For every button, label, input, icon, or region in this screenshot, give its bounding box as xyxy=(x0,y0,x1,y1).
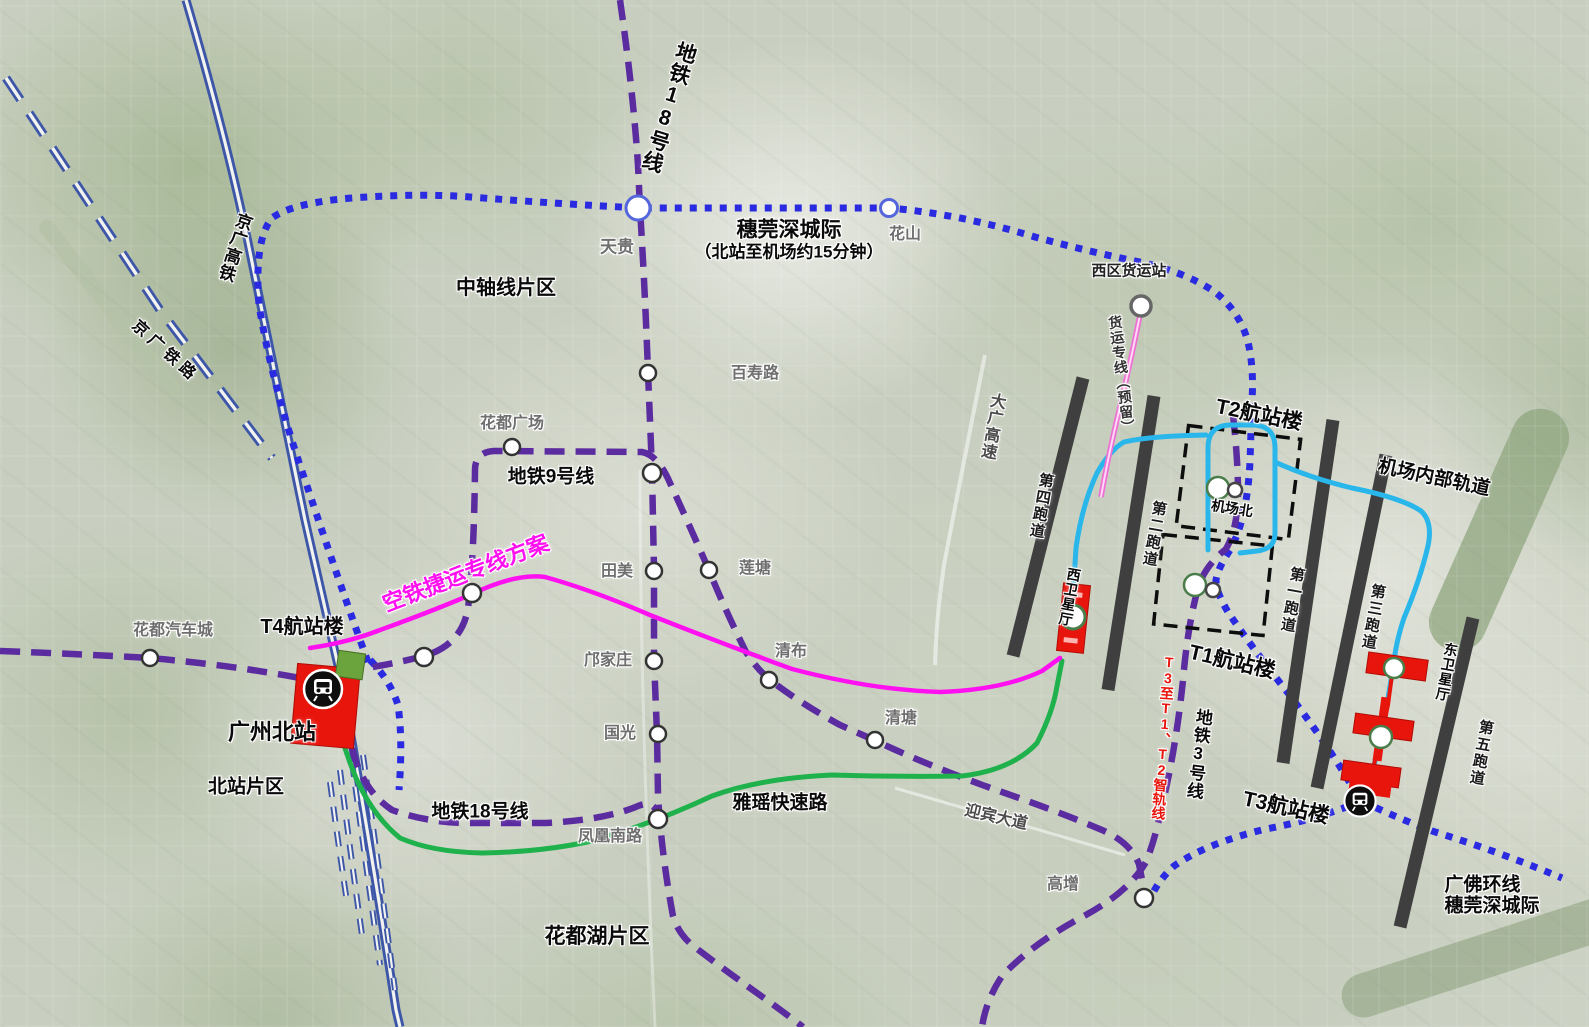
label-qingbu: 清布 xyxy=(775,643,807,661)
station-qingbu xyxy=(761,672,777,688)
label-north-station-area: 北站片区 xyxy=(208,776,284,797)
station-tiangui xyxy=(626,196,650,220)
label-fenghuang-south-rd: 凤凰南路 xyxy=(578,828,642,846)
label-suiwanshen-intercity: 穗莞深城际 （北站至机场约15分钟） xyxy=(695,219,884,262)
station-airport-north-a xyxy=(1207,477,1229,499)
station-east-satellite-1 xyxy=(1384,658,1404,678)
station-guoguang xyxy=(650,726,666,742)
label-t4-terminal: T4航站楼 xyxy=(260,616,343,638)
label-metro9: 地铁9号线 xyxy=(508,466,595,487)
map-lines-layer xyxy=(0,0,1589,1027)
station-huadu-square xyxy=(504,439,520,455)
label-yayao-expressway: 雅瑶快速路 xyxy=(732,792,827,813)
label-metro18-south: 地铁18号线 xyxy=(431,801,528,822)
station-tianmei xyxy=(646,563,662,579)
station-interchange xyxy=(643,464,661,482)
label-gaozeng: 高增 xyxy=(1047,876,1079,894)
label-baishoulu: 百寿路 xyxy=(731,365,779,383)
road-lines xyxy=(640,355,1125,1027)
label-kuangjiazhuang: 邝家庄 xyxy=(584,652,632,670)
terminal-buildings xyxy=(291,583,1429,798)
station-qingtang xyxy=(867,732,883,748)
label-huadu-lake-area: 花都湖片区 xyxy=(545,925,650,949)
label-suiwanshen-intercity2: 穗莞深城际 xyxy=(1444,896,1539,917)
station-auto-city xyxy=(142,650,158,666)
label-guangfo-suiwanshen: 广佛环线 穗莞深城际 xyxy=(1444,875,1539,918)
station-t1-a xyxy=(1184,574,1206,596)
station-east-satellite-2 xyxy=(1370,726,1392,748)
label-huashan: 花山 xyxy=(889,226,921,244)
station-kuangjiazhuang xyxy=(646,653,662,669)
train-station-icon xyxy=(1344,785,1375,816)
label-tianmei: 田美 xyxy=(601,563,633,581)
station-t1-b xyxy=(1206,583,1220,597)
label-guoguang: 国光 xyxy=(604,725,636,743)
label-tiangui: 天贵 xyxy=(600,237,634,256)
metro-line-18 xyxy=(352,0,803,1027)
station-baishoulu xyxy=(640,365,656,381)
label-central-axis-area: 中轴线片区 xyxy=(456,277,556,299)
jingguang-hsr-line xyxy=(186,0,400,1027)
label-qingtang: 清塘 xyxy=(885,710,917,728)
t4-terminal-site xyxy=(335,650,365,680)
train-station-icon xyxy=(304,670,342,708)
station-west-cargo xyxy=(1131,296,1151,316)
station-airport-north-b xyxy=(1228,483,1242,497)
station-gaozeng xyxy=(1135,889,1153,907)
station-line9 xyxy=(415,648,433,666)
label-huadu-auto-city: 花都汽车城 xyxy=(133,622,213,640)
label-guangzhou-north-station: 广州北站 xyxy=(228,721,316,746)
station-fenghuang xyxy=(649,810,667,828)
label-liantang: 莲塘 xyxy=(739,560,771,578)
station-liantang xyxy=(701,562,717,578)
label-huadu-square: 花都广场 xyxy=(480,415,544,433)
label-guangfo-loop: 广佛环线 xyxy=(1444,875,1539,896)
station-huashan xyxy=(881,200,898,217)
label-intercity-sub: （北站至机场约15分钟） xyxy=(695,242,884,261)
transit-planning-map: 京广高铁 京广铁路 地铁18号线 穗莞深城际 （北站至机场约15分钟） 中轴线片… xyxy=(0,0,1589,1027)
label-west-cargo-station: 西区货运站 xyxy=(1091,264,1166,281)
label-intercity-title: 穗莞深城际 xyxy=(695,219,884,243)
